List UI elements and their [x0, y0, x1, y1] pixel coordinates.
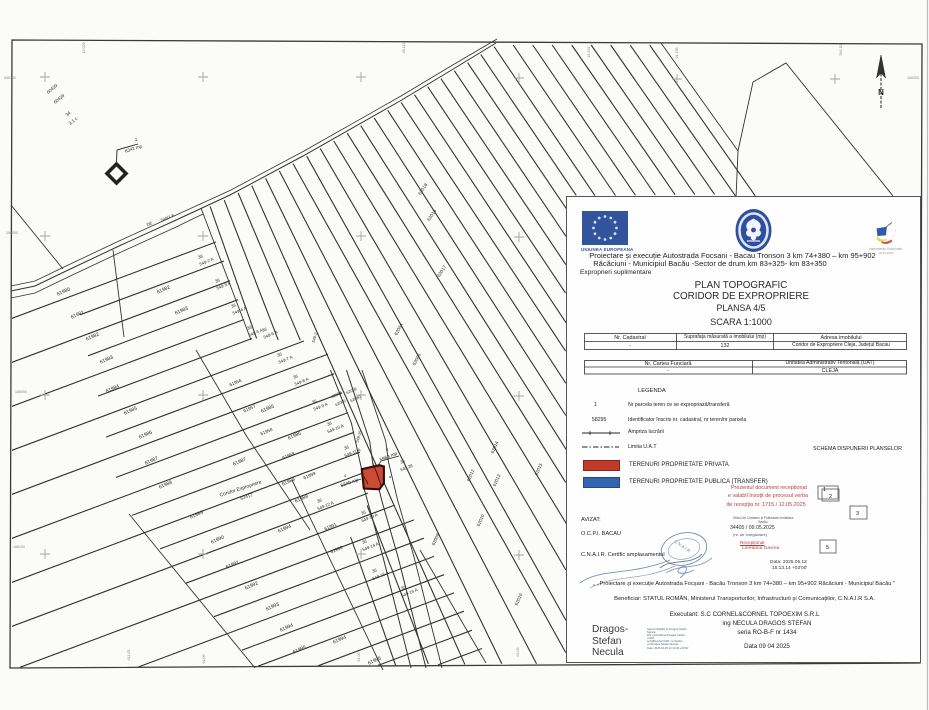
svg-text:546.15: 546.15: [839, 45, 843, 56]
svg-text:61.06: 61.06: [202, 655, 206, 664]
svg-text:N: N: [878, 88, 884, 97]
svg-text:548750: 548750: [4, 76, 16, 80]
svg-text:61.06: 61.06: [357, 653, 361, 662]
svg-text:5: 5: [826, 545, 829, 551]
svg-text:48.194: 48.194: [587, 47, 591, 58]
svg-text:166000: 166000: [907, 76, 919, 80]
svg-text:61.06: 61.06: [516, 648, 520, 657]
svg-text:61.196: 61.196: [675, 48, 679, 59]
svg-text:45.009: 45.009: [82, 43, 86, 54]
svg-text:166050: 166050: [15, 390, 27, 394]
svg-text:166050: 166050: [6, 231, 18, 235]
svg-text:2: 2: [829, 494, 832, 500]
svg-text:166100: 166100: [13, 545, 25, 549]
svg-text:3: 3: [856, 511, 859, 517]
svg-text:611.05: 611.05: [127, 650, 131, 661]
svg-text:48.113: 48.113: [402, 43, 406, 54]
